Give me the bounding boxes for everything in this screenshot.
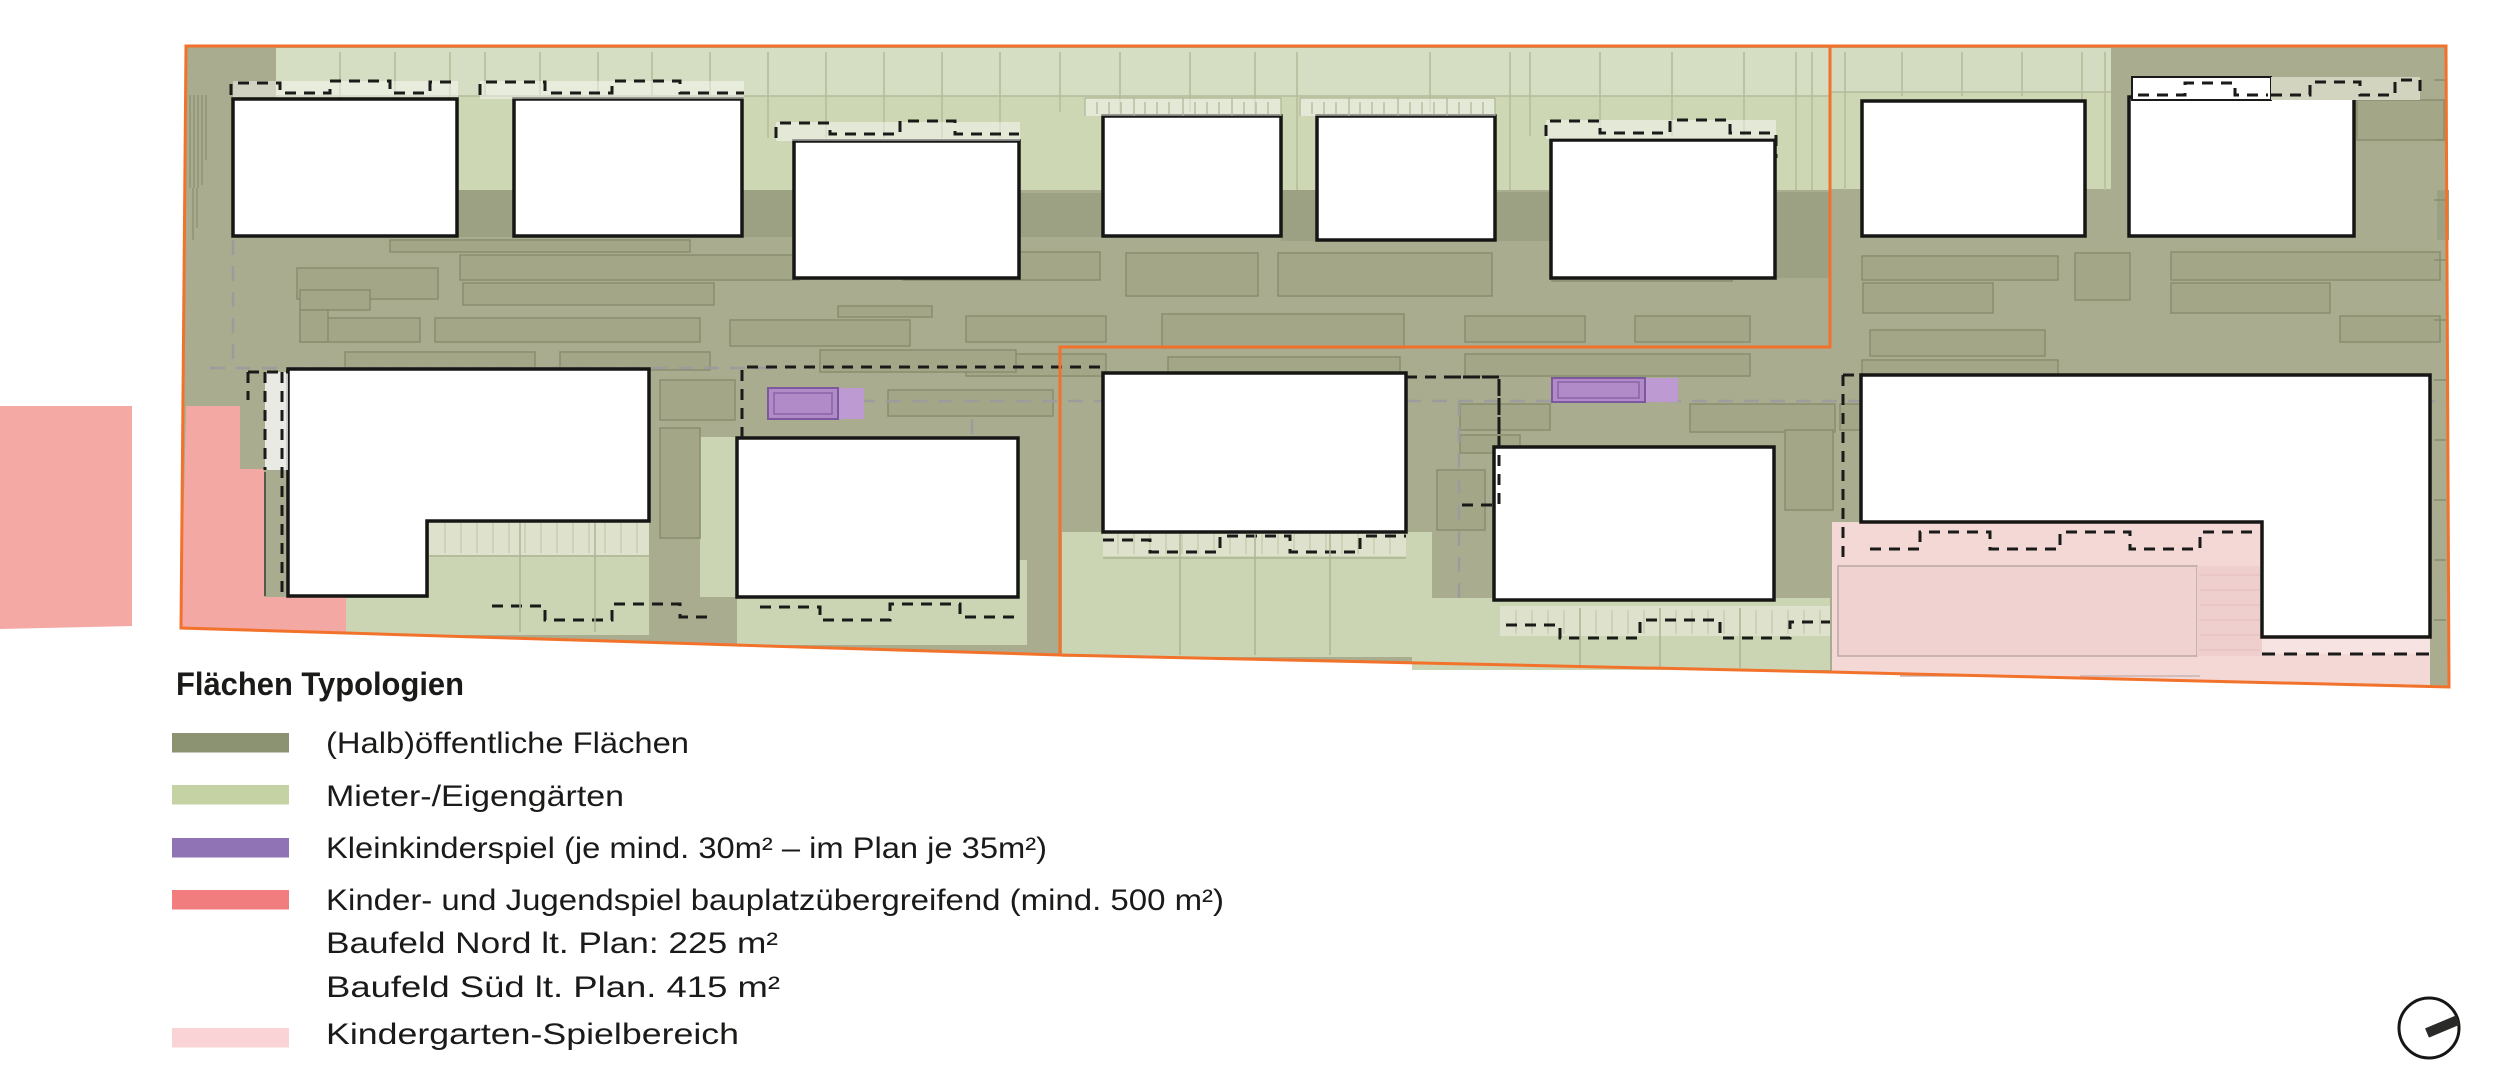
svg-text:Baufeld Süd lt. Plan. 415 m²: Baufeld Süd lt. Plan. 415 m²: [326, 971, 780, 1004]
svg-text:Flächen Typologien: Flächen Typologien: [176, 666, 464, 702]
svg-text:Kinder- und Jugendspiel baupla: Kinder- und Jugendspiel bauplatzübergrei…: [326, 884, 1224, 917]
svg-text:Baufeld Nord lt. Plan: 225 m²: Baufeld Nord lt. Plan: 225 m²: [326, 927, 778, 960]
svg-text:Kindergarten-Spielbereich: Kindergarten-Spielbereich: [326, 1018, 739, 1051]
svg-text:(Halb)öffentliche Flächen: (Halb)öffentliche Flächen: [326, 727, 689, 760]
svg-text:Kleinkinderspiel (je mind. 30m: Kleinkinderspiel (je mind. 30m² – im Pla…: [326, 832, 1047, 865]
svg-text:Mieter-/Eigengärten: Mieter-/Eigengärten: [326, 780, 624, 813]
